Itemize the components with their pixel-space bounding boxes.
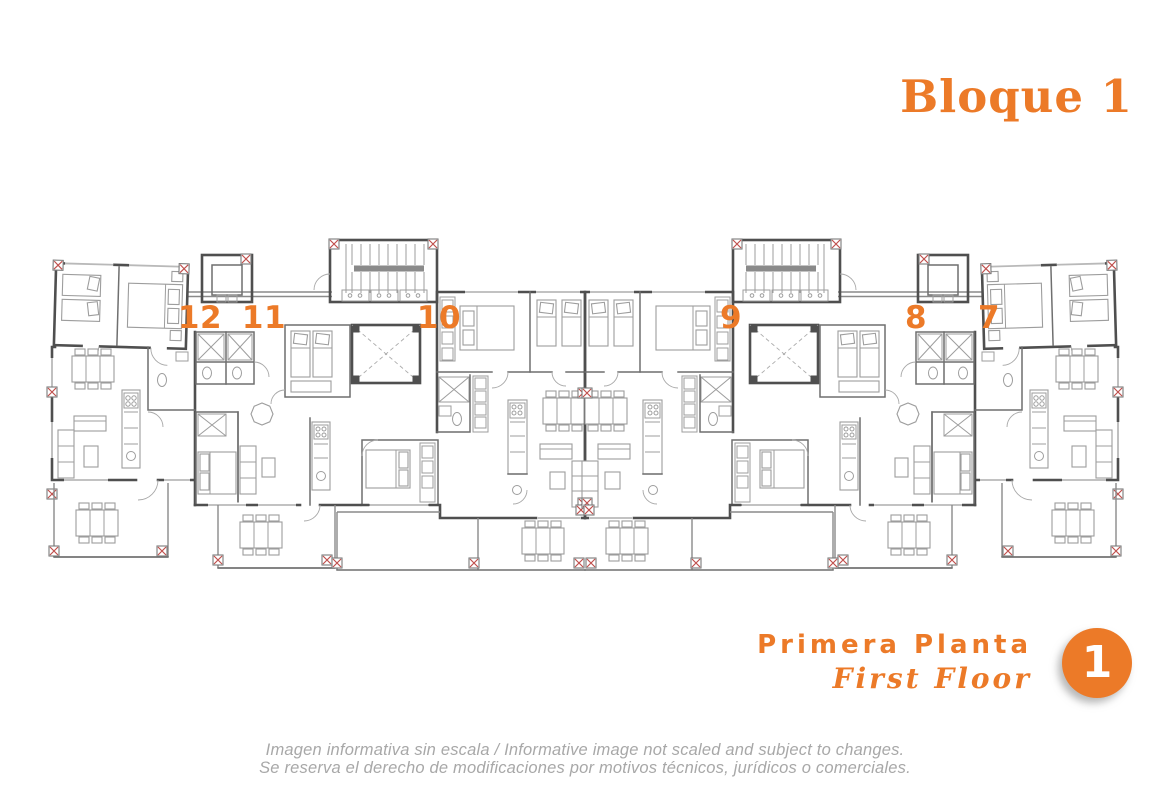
unit-label-11: 11 — [242, 300, 286, 336]
floor-label-english: First Floor — [833, 662, 1032, 695]
block-title: Bloque 1 — [900, 70, 1133, 123]
floor-label-spanish: Primera Planta — [757, 630, 1032, 660]
building-right-half-mirror — [582, 239, 1123, 570]
disclaimer-line-1: Imagen informativa sin escala / Informat… — [0, 741, 1170, 759]
floor-number-badge: 1 — [1062, 628, 1132, 698]
unit-label-9: 9 — [720, 300, 742, 336]
unit-label-12: 12 — [178, 300, 222, 336]
building-left-half — [47, 239, 588, 570]
floor-number: 1 — [1082, 641, 1113, 685]
disclaimer-line-2: Se reserva el derecho de modificaciones … — [0, 759, 1170, 777]
unit-label-7: 7 — [978, 300, 1000, 336]
unit-label-10: 10 — [417, 300, 461, 336]
floor-plan-page: Bloque 1 12 11 10 9 8 7 Primera Planta F… — [0, 0, 1170, 785]
unit-label-8: 8 — [905, 300, 927, 336]
disclaimer: Imagen informativa sin escala / Informat… — [0, 741, 1170, 777]
